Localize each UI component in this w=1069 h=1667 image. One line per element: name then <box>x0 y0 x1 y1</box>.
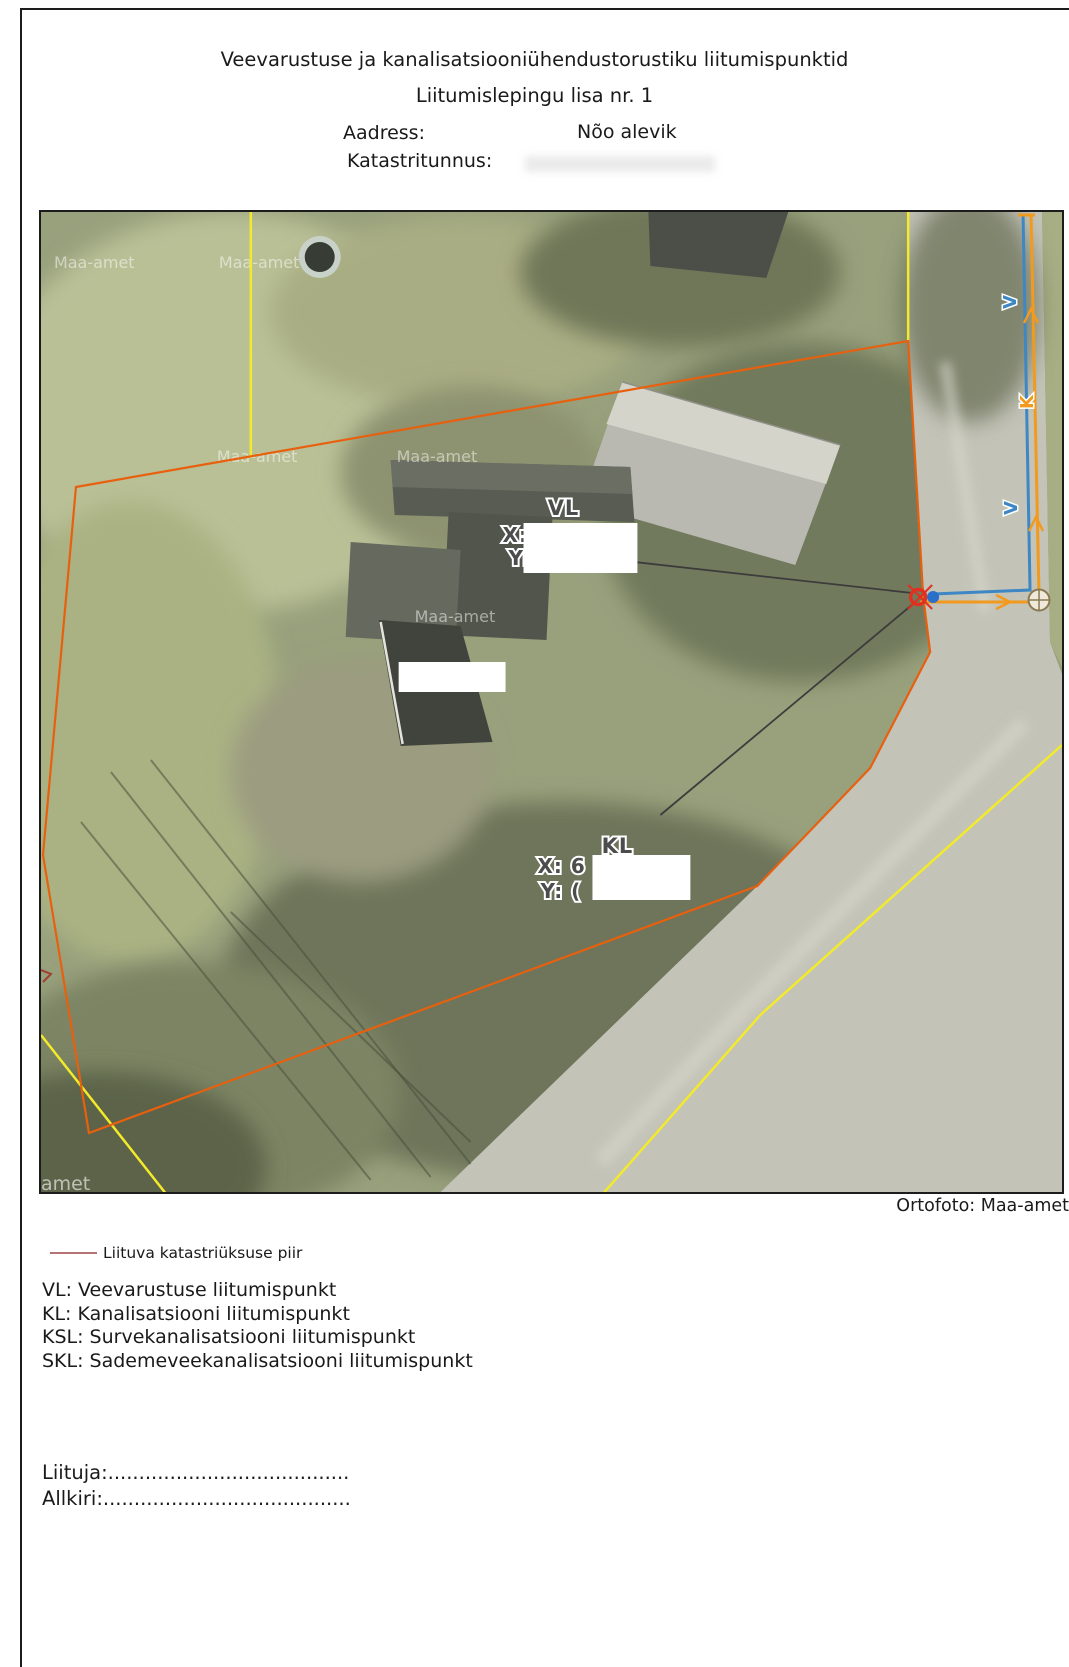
kl-x-label: X: 6 <box>538 854 586 878</box>
sewer-pipe-label: K <box>1017 394 1038 409</box>
boundary-legend-line-icon <box>50 1252 97 1254</box>
water-pipe-label: V <box>1000 295 1021 309</box>
vl-coords-redaction-box <box>524 523 638 573</box>
page-title: Veevarustuse ja kanalisatsiooniühendusto… <box>0 48 1069 71</box>
watermark: amet <box>41 1173 90 1192</box>
cadastral-label: Katastritunnus: <box>347 150 492 172</box>
address-value: Nõo alevik <box>577 121 677 143</box>
legend-definitions: VL: Veevarustuse liitumispunkt KL: Kanal… <box>42 1279 473 1373</box>
page-border-top <box>20 8 1069 10</box>
legend-def-vl: VL: Veevarustuse liitumispunkt <box>42 1279 473 1303</box>
legend-def-kl: KL: Kanalisatsiooni liitumispunkt <box>42 1303 473 1327</box>
page-border-left <box>20 8 22 1667</box>
boundary-legend-label: Liituva katastriüksuse piir <box>103 1244 302 1262</box>
orthophoto-map: Maa-amet Maa-amet Maa-amet Maa-amet Maa-… <box>39 210 1064 1194</box>
document-page: Veevarustuse ja kanalisatsiooniühendusto… <box>0 0 1069 1667</box>
signature-liituja-line: Liituja:................................… <box>42 1460 351 1486</box>
signature-allkiri-line: Allkiri:................................… <box>42 1486 351 1512</box>
water-pipe-label: V <box>1001 501 1022 515</box>
kl-title: KL <box>602 834 634 858</box>
legend-def-ksl: KSL: Survekanalisatsiooni liitumispunkt <box>42 1326 473 1350</box>
watermark: Maa-amet <box>54 253 135 272</box>
legend-def-skl: SKL: Sademeveekanalisatsiooni liitumispu… <box>42 1350 473 1374</box>
watermark: Maa-amet <box>397 447 478 466</box>
orthophoto-svg: Maa-amet Maa-amet Maa-amet Maa-amet Maa-… <box>41 212 1062 1192</box>
central-redaction-box <box>399 662 506 692</box>
watermark: Maa-amet <box>415 607 496 626</box>
water-point-dot-icon <box>927 591 939 603</box>
well <box>305 242 335 272</box>
address-label: Aadress: <box>343 122 425 144</box>
map-credit: Ortofoto: Maa-amet <box>896 1196 1069 1216</box>
kl-coords-redaction-box <box>592 855 690 900</box>
signature-block: Liituja:................................… <box>42 1460 351 1511</box>
watermark: Maa-amet <box>219 253 300 272</box>
vl-title: VL <box>548 496 580 520</box>
cadastral-value-redacted <box>525 156 715 172</box>
kl-y-label: Y: ( <box>540 879 582 903</box>
page-subtitle: Liitumislepingu lisa nr. 1 <box>0 84 1069 107</box>
